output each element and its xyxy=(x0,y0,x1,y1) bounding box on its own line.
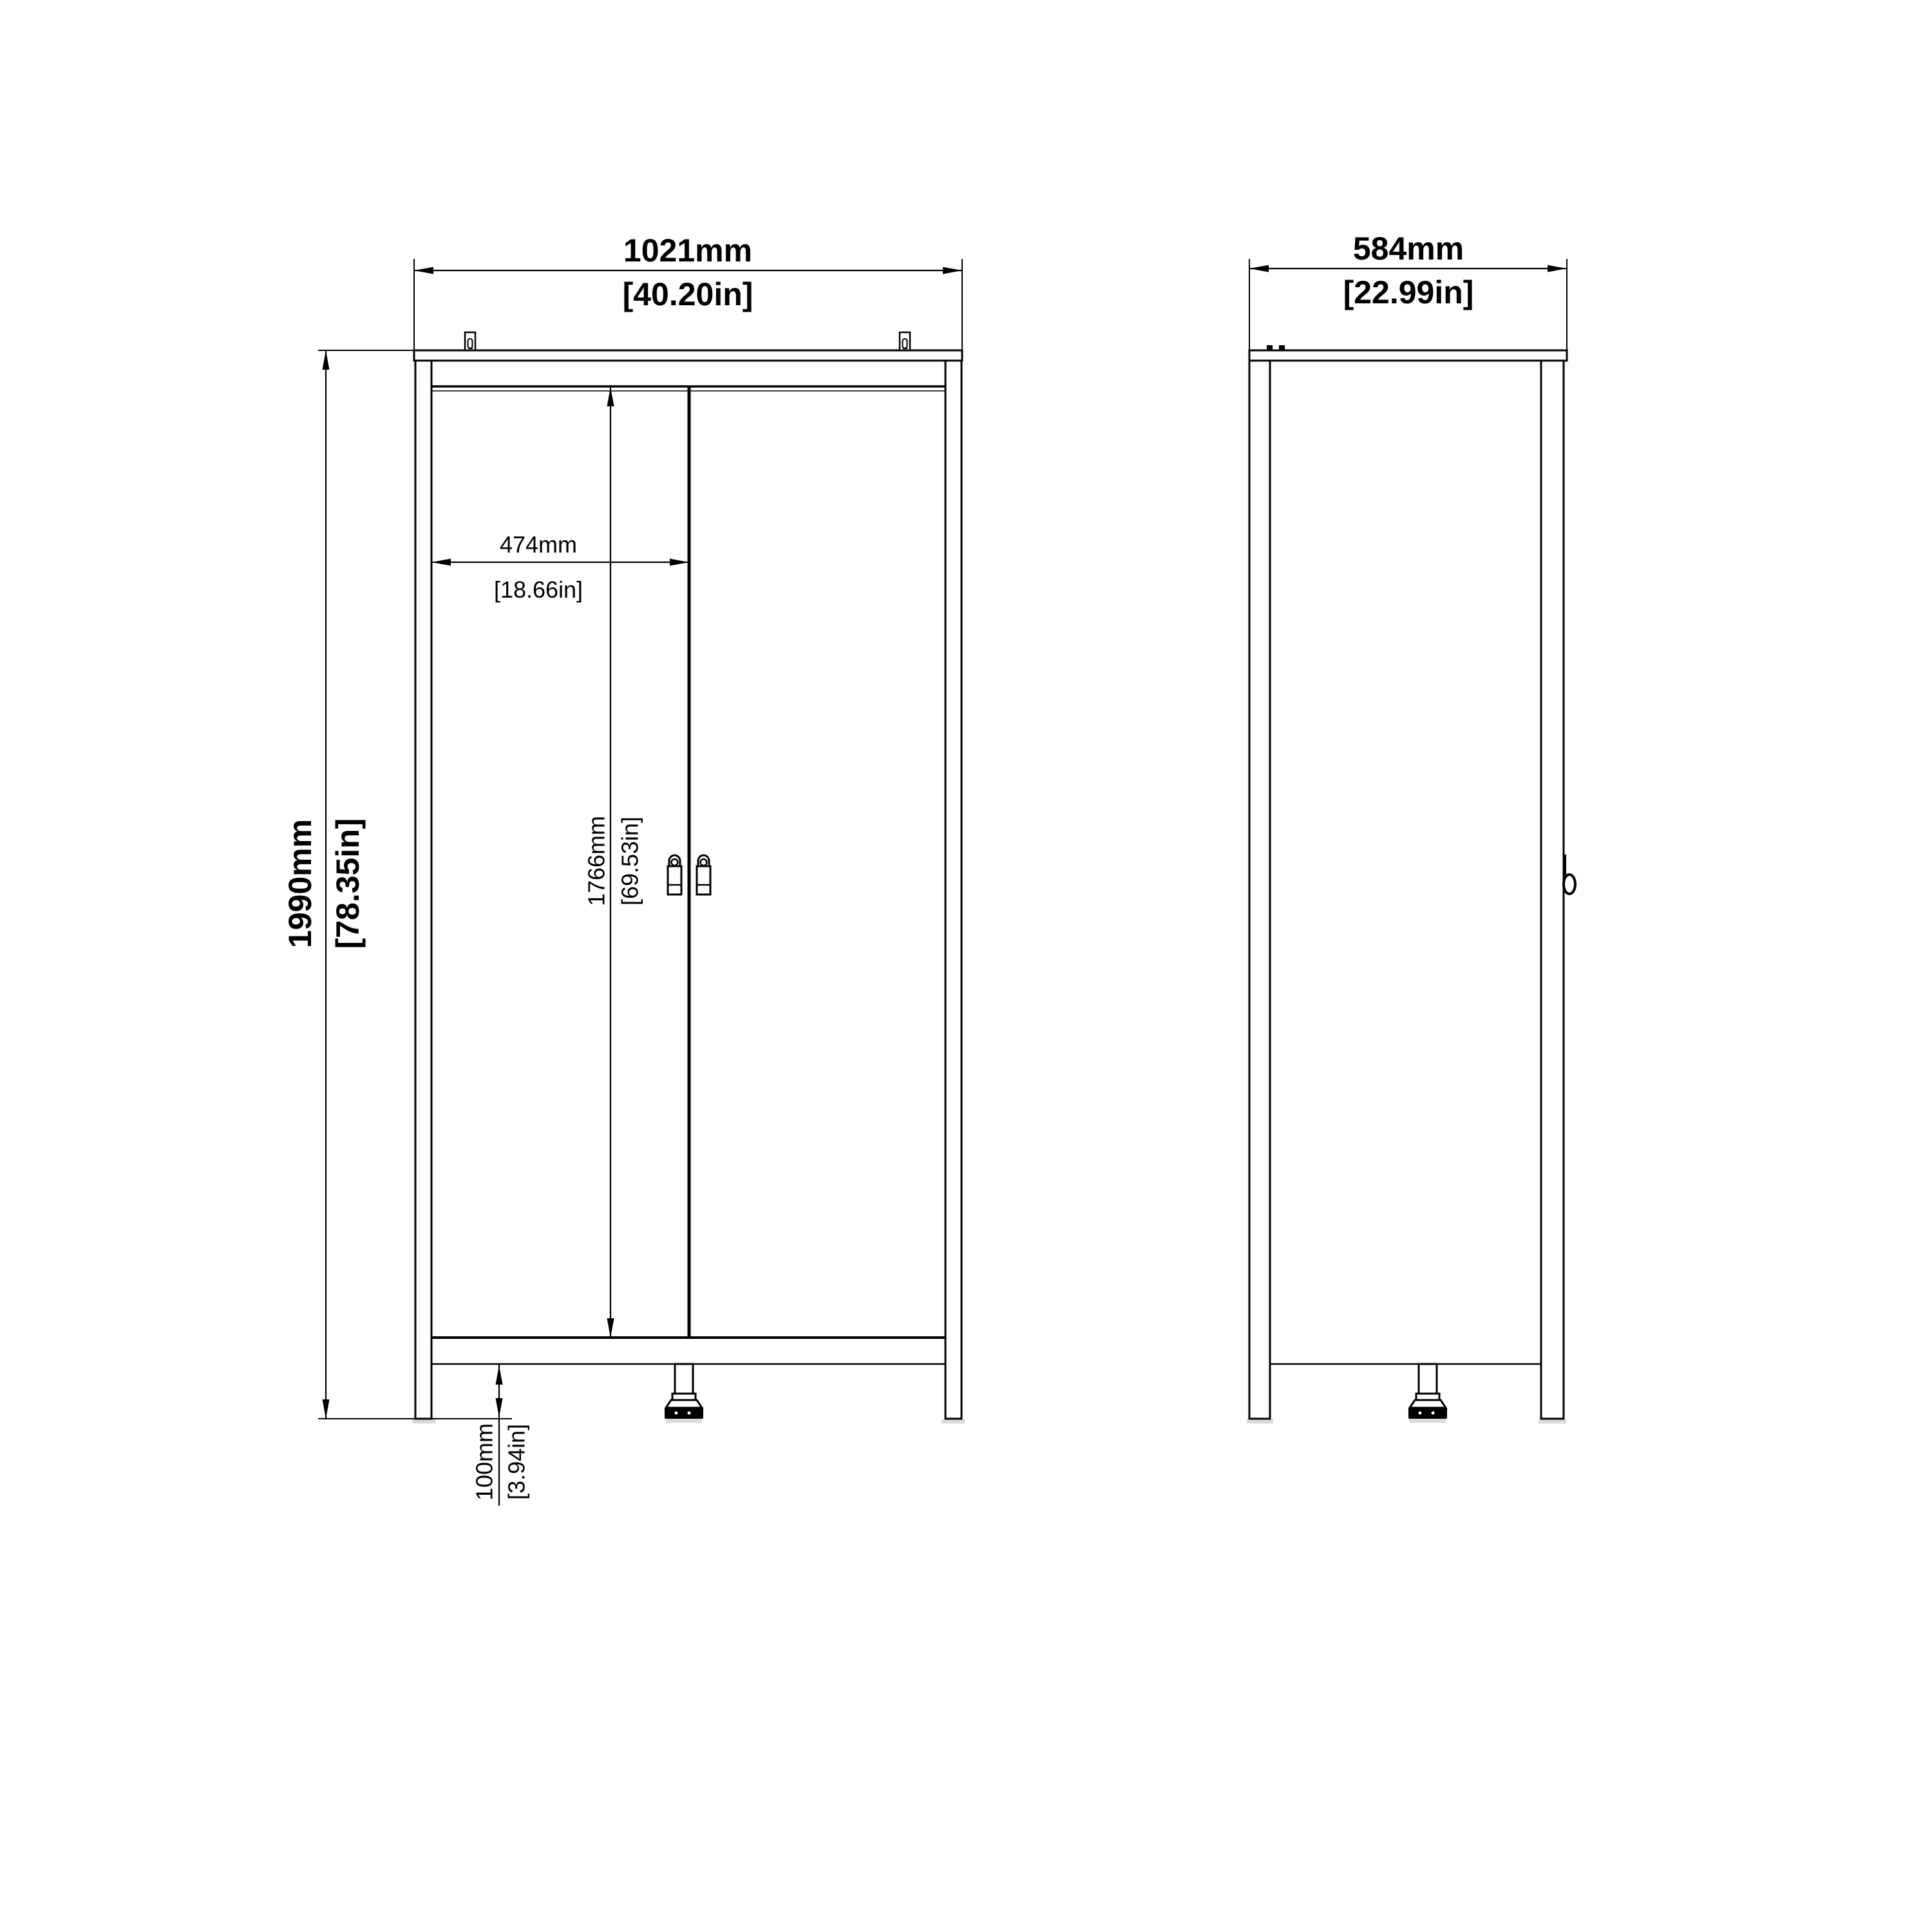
front-left-side-panel xyxy=(415,361,431,1419)
base-clearance-mm-label: 100mm xyxy=(471,1423,498,1501)
side-front-panel xyxy=(1541,361,1564,1419)
dimension-door-width: 474mm [18.66in] xyxy=(431,531,689,603)
front-view: 1021mm [40.20in] 1990mm [78.35in] 474mm … xyxy=(282,232,965,1506)
door-width-in-label: [18.66in] xyxy=(494,576,583,603)
side-back-panel xyxy=(1249,361,1270,1419)
dimension-front-height: 1990mm [78.35in] xyxy=(282,350,366,1419)
front-floor-shadows xyxy=(412,1421,965,1421)
side-depth-in-label: [22.99in] xyxy=(1343,274,1474,310)
door-height-mm-label: 1766mm xyxy=(583,816,610,906)
side-handle-profile xyxy=(1563,855,1575,894)
side-view: 584mm [22.99in] xyxy=(1247,231,1575,1421)
door-height-in-label: [69.53in] xyxy=(617,817,643,905)
dimension-door-height: 1766mm [69.53in] xyxy=(583,387,643,1338)
front-width-in-label: [40.20in] xyxy=(623,276,753,312)
base-clearance-in-label: [3.94in] xyxy=(504,1424,530,1500)
door-handle-left xyxy=(668,855,681,895)
front-right-side-panel xyxy=(945,361,961,1419)
wall-bracket-icon-left xyxy=(465,332,475,350)
side-floor-shadows xyxy=(1247,1421,1566,1421)
side-top-panel xyxy=(1249,350,1567,361)
wall-bracket-icon-right xyxy=(900,332,910,350)
dimension-base-clearance: 100mm [3.94in] xyxy=(471,1364,530,1506)
front-top-panel xyxy=(414,350,962,361)
front-width-mm-label: 1021mm xyxy=(623,232,752,269)
dimension-front-width: 1021mm [40.20in] xyxy=(414,232,962,312)
front-height-in-label: [78.35in] xyxy=(330,819,366,949)
side-depth-mm-label: 584mm xyxy=(1353,231,1464,267)
side-adjustable-foot xyxy=(1408,1364,1447,1419)
door-width-mm-label: 474mm xyxy=(500,531,577,558)
wardrobe-dimension-drawing: 1021mm [40.20in] 1990mm [78.35in] 474mm … xyxy=(0,0,1932,1932)
front-adjustable-foot xyxy=(665,1364,703,1419)
door-handle-right xyxy=(697,855,710,895)
front-height-mm-label: 1990mm xyxy=(282,819,318,948)
dimension-side-depth: 584mm [22.99in] xyxy=(1249,231,1567,310)
